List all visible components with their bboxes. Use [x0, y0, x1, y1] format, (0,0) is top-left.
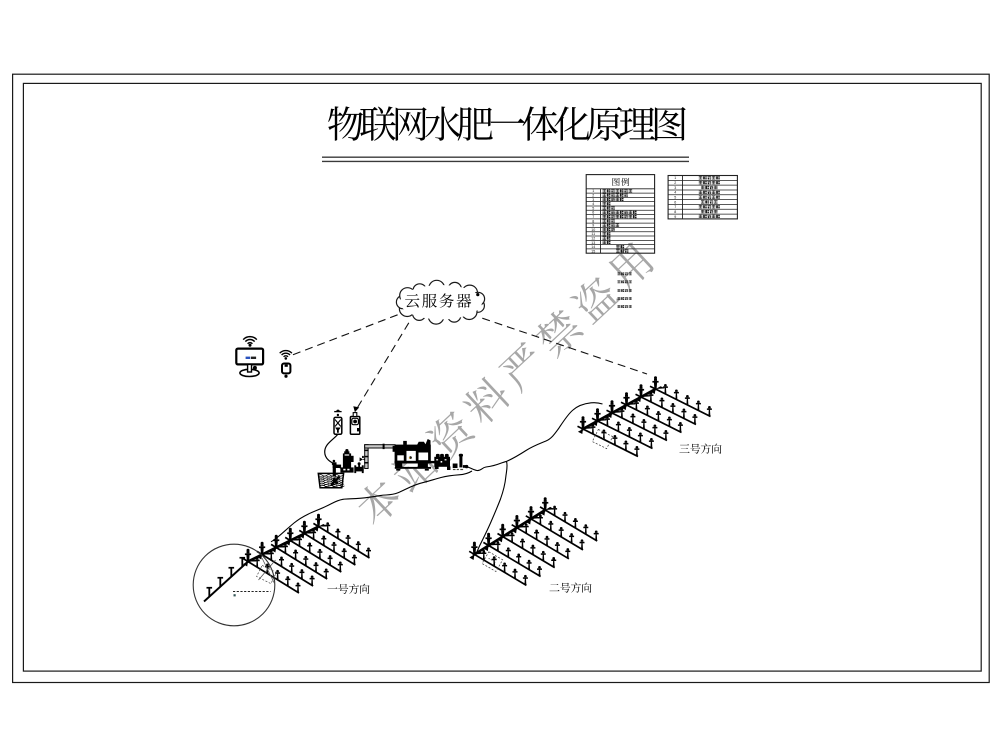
svg-text:5: 5 [674, 196, 676, 200]
svg-text:8: 8 [674, 210, 676, 214]
svg-text:2: 2 [674, 181, 676, 185]
svg-text:1: 1 [674, 176, 676, 180]
svg-text:9: 9 [674, 215, 676, 219]
svg-text:15: 15 [591, 249, 595, 253]
svg-text:3: 3 [674, 186, 676, 190]
svg-text:7: 7 [674, 205, 676, 209]
svg-text:4: 4 [674, 191, 676, 195]
svg-text:6: 6 [674, 200, 676, 204]
